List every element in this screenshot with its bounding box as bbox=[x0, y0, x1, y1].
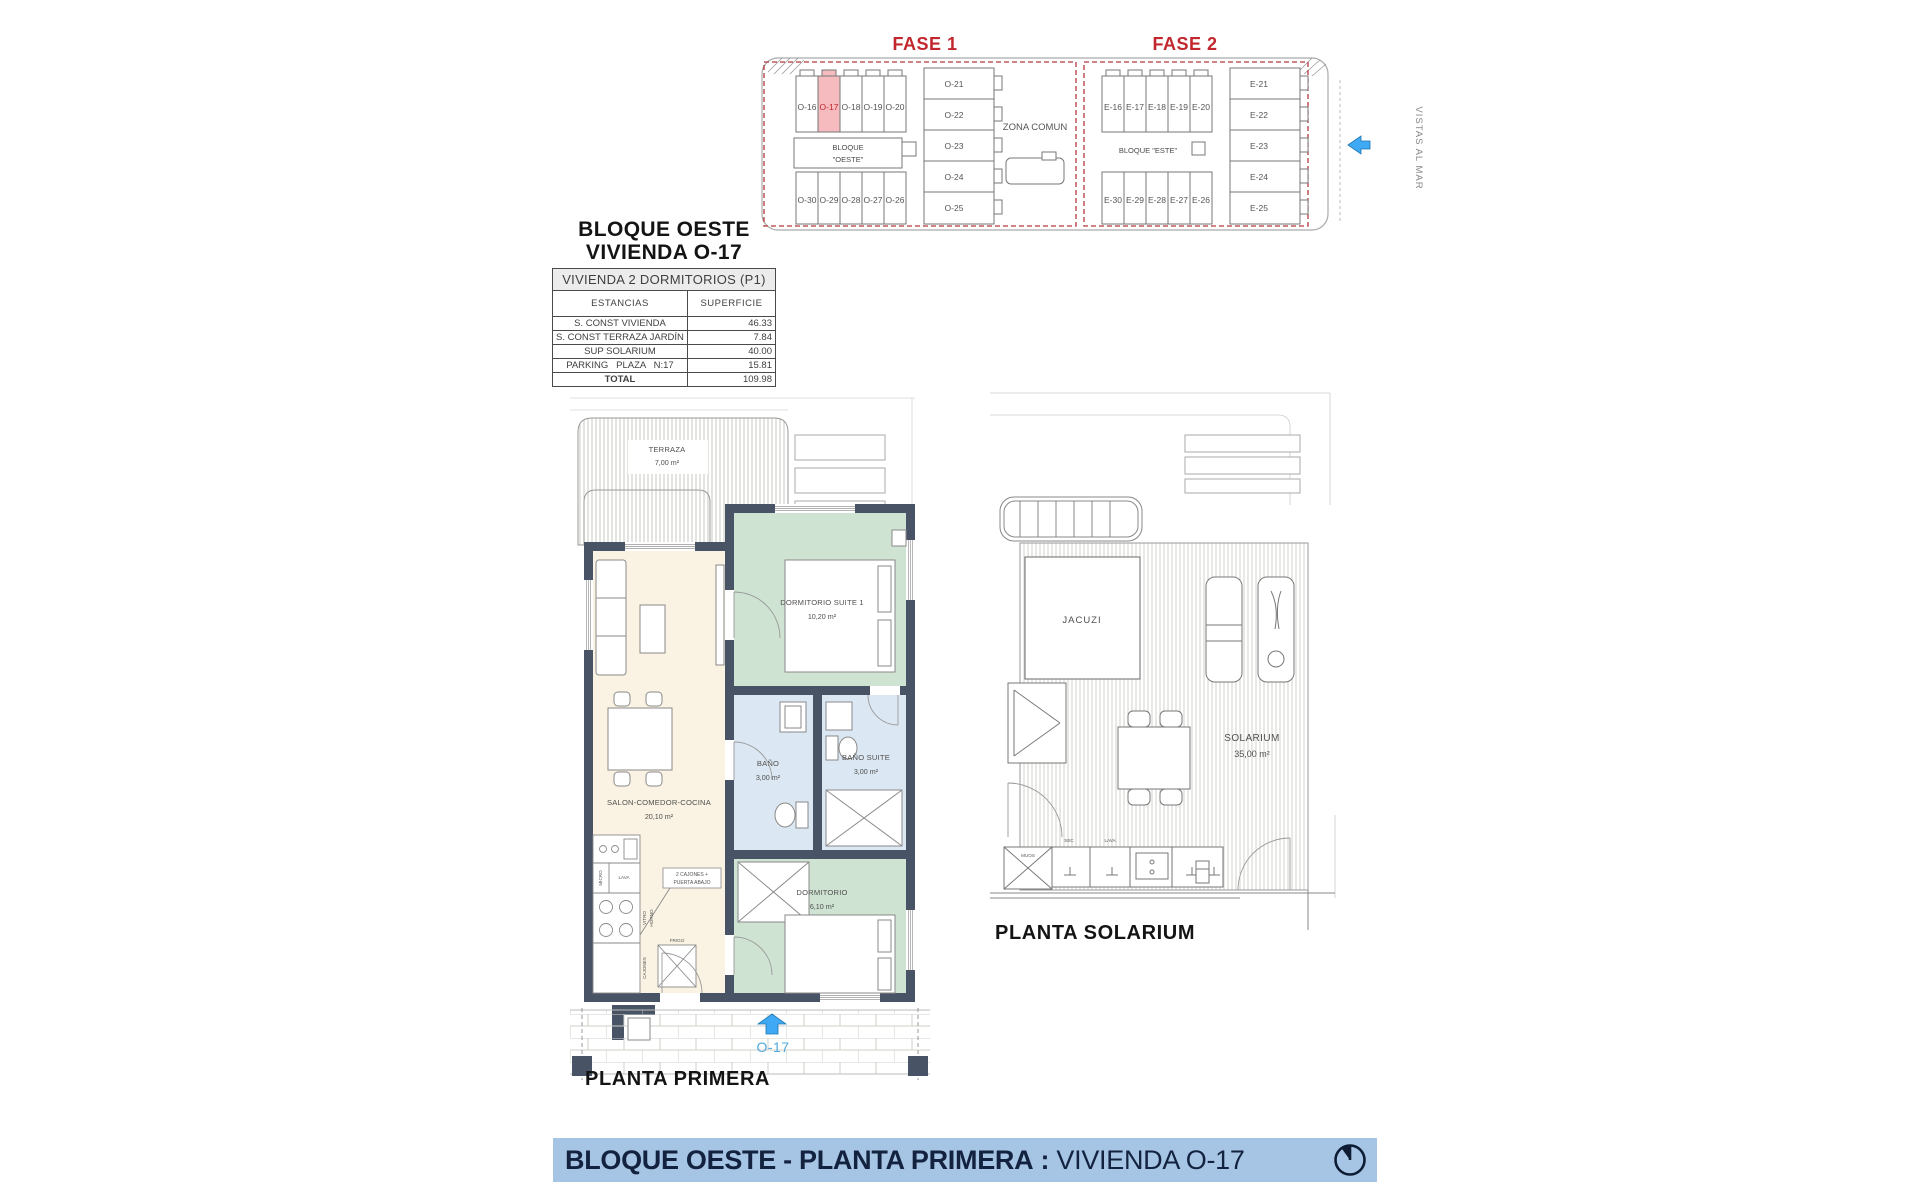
unit-label: O-22 bbox=[945, 110, 964, 120]
row-value: 7.84 bbox=[687, 331, 775, 345]
col-estancias: ESTANCIAS bbox=[553, 291, 688, 317]
lava-label: LAVA bbox=[1104, 838, 1116, 843]
bloque-oeste-label-1: BLOQUE bbox=[832, 143, 863, 152]
unit-label: E-20 bbox=[1192, 102, 1210, 112]
row-label: S. CONST TERRAZA JARDÍN bbox=[553, 331, 688, 345]
unit-label: O-26 bbox=[886, 195, 905, 205]
north-arrow-icon bbox=[1332, 1142, 1368, 1178]
unit-label-highlight: O-17 bbox=[820, 102, 839, 112]
unit-label: E-25 bbox=[1250, 203, 1268, 213]
dormitorio-name: DORMITORIO bbox=[796, 888, 847, 897]
salon-name: SALON-COMEDOR-COCINA bbox=[607, 798, 712, 807]
planters bbox=[795, 435, 885, 509]
sofa bbox=[596, 560, 626, 675]
fase2-title: FASE 2 bbox=[1152, 34, 1217, 54]
total-label: TOTAL bbox=[553, 373, 688, 387]
vitro-label: VITRO bbox=[642, 911, 647, 925]
corner-box: MUOS bbox=[1004, 847, 1052, 889]
unit-label: E-24 bbox=[1250, 172, 1268, 182]
note-line1: 2 CAJONES + bbox=[676, 872, 708, 878]
corner-marker bbox=[908, 1056, 928, 1076]
row-value: 40.00 bbox=[687, 345, 775, 359]
suite-area: 10,20 m² bbox=[808, 612, 837, 621]
micro-label: MICRO bbox=[598, 870, 603, 886]
bano-suite-area: 3,00 m² bbox=[854, 767, 879, 776]
area-table: VIVIENDA 2 DORMITORIOS (P1) ESTANCIAS SU… bbox=[552, 268, 776, 387]
suite-shower bbox=[826, 790, 902, 846]
floor-plan-planta-solarium: JACUZI SOLARIUM 35,00 m² SEC LAVA MUOS bbox=[990, 385, 1340, 930]
coffee-table bbox=[640, 605, 665, 653]
pool-shape bbox=[1006, 152, 1064, 184]
unit-label: O-21 bbox=[945, 79, 964, 89]
col-superficie: SUPERFICIE bbox=[687, 291, 775, 317]
floor-plan-planta-primera: TERRAZA 7,00 m² bbox=[570, 390, 930, 1080]
unit-label: O-20 bbox=[886, 102, 905, 112]
terraza-area: 7,00 m² bbox=[655, 458, 680, 467]
table-row-total: TOTAL 109.98 bbox=[553, 373, 776, 387]
suite-name: DORMITORIO SUITE 1 bbox=[780, 598, 864, 607]
row-label: SUP SOLARIUM bbox=[553, 345, 688, 359]
unit-number-label: O-17 bbox=[756, 1039, 789, 1055]
dormitorio-area: 6,10 m² bbox=[810, 902, 835, 911]
horno-label: HORNO bbox=[649, 909, 654, 927]
row-label: S. CONST VIVIENDA bbox=[553, 317, 688, 331]
note-line2: PUERTA ABAJO bbox=[673, 880, 710, 886]
unit-label: E-17 bbox=[1126, 102, 1144, 112]
row-label: PARKING PLAZA N:17 bbox=[553, 359, 688, 373]
salon-area: 20,10 m² bbox=[645, 812, 674, 821]
unit-label: E-23 bbox=[1250, 141, 1268, 151]
unit-label: O-29 bbox=[820, 195, 839, 205]
bloque-este-label: BLOQUE "ESTE" bbox=[1119, 146, 1178, 155]
solarium-area: 35,00 m² bbox=[1234, 749, 1270, 759]
sec-label: SEC bbox=[1064, 838, 1074, 843]
unit-label: O-25 bbox=[945, 203, 964, 213]
shower-box bbox=[1008, 683, 1066, 763]
table-row: SUP SOLARIUM 40.00 bbox=[553, 345, 776, 359]
jacuzzi: JACUZI bbox=[1025, 557, 1140, 679]
unit-label: E-22 bbox=[1250, 110, 1268, 120]
solarium-name: SOLARIUM bbox=[1224, 733, 1279, 744]
frigo-label: FRIGO bbox=[670, 938, 685, 943]
unit-label: E-16 bbox=[1104, 102, 1122, 112]
total-value: 109.98 bbox=[687, 373, 775, 387]
zona-comun-label: ZONA COMUN bbox=[1003, 122, 1068, 133]
bano-suite-name: BAÑO SUITE bbox=[842, 753, 890, 762]
corner-hatch-left bbox=[768, 58, 804, 74]
cajones-label: CAJONES bbox=[642, 957, 647, 979]
railing bbox=[1000, 497, 1142, 541]
fase1-title: FASE 1 bbox=[892, 34, 957, 54]
unit-label: O-24 bbox=[945, 172, 964, 182]
footer-banner: BLOQUE OESTE - PLANTA PRIMERA : VIVIENDA… bbox=[553, 1138, 1377, 1182]
unit-label: O-18 bbox=[842, 102, 861, 112]
unit-label: O-19 bbox=[864, 102, 883, 112]
footer-separator: : bbox=[1033, 1145, 1056, 1176]
box-label: MUOS bbox=[1021, 853, 1035, 858]
table-header: VIVIENDA 2 DORMITORIOS (P1) bbox=[553, 269, 776, 291]
row-value: 15.81 bbox=[687, 359, 775, 373]
jacuzi-label: JACUZI bbox=[1062, 615, 1101, 626]
fridge bbox=[658, 945, 696, 987]
title-block: BLOQUE OESTE VIVIENDA O-17 bbox=[552, 218, 776, 264]
unit-label: E-26 bbox=[1192, 195, 1210, 205]
title-line2: VIVIENDA O-17 bbox=[552, 241, 776, 264]
unit-label: E-27 bbox=[1170, 195, 1188, 205]
terraza-name: TERRAZA bbox=[649, 445, 687, 454]
row-value: 46.33 bbox=[687, 317, 775, 331]
table-row: S. CONST VIVIENDA 46.33 bbox=[553, 317, 776, 331]
counter bbox=[1048, 847, 1223, 887]
unit-label: O-28 bbox=[842, 195, 861, 205]
dormitorio-furniture bbox=[785, 915, 895, 993]
dining-table bbox=[608, 708, 672, 770]
table-row: PARKING PLAZA N:17 15.81 bbox=[553, 359, 776, 373]
unit-label: E-19 bbox=[1170, 102, 1188, 112]
lava-label: LAVA bbox=[618, 875, 630, 880]
unit-label: O-23 bbox=[945, 141, 964, 151]
bano-area: 3,00 m² bbox=[756, 773, 781, 782]
unit-label: E-28 bbox=[1148, 195, 1166, 205]
unit-label: E-18 bbox=[1148, 102, 1166, 112]
bloque-oeste-label-2: "OESTE" bbox=[833, 155, 864, 164]
footer-title-bold: BLOQUE OESTE - PLANTA PRIMERA bbox=[565, 1145, 1033, 1176]
vistas-al-mar-label: VISTAS AL MAR bbox=[1413, 106, 1424, 189]
kitchen-note: 2 CAJONES + PUERTA ABAJO bbox=[663, 868, 721, 888]
title-line1: BLOQUE OESTE bbox=[552, 218, 776, 241]
unit-label: E-30 bbox=[1104, 195, 1122, 205]
table-row: S. CONST TERRAZA JARDÍN 7.84 bbox=[553, 331, 776, 345]
tv-unit bbox=[716, 565, 724, 665]
footer-title-regular: VIVIENDA O-17 bbox=[1056, 1145, 1244, 1176]
stair-bars bbox=[1185, 435, 1300, 493]
unit-label: O-30 bbox=[798, 195, 817, 205]
unit-label: E-21 bbox=[1250, 79, 1268, 89]
planta-solarium-title: PLANTA SOLARIUM bbox=[995, 922, 1195, 945]
sea-view-arrow-icon bbox=[1348, 136, 1370, 154]
unit-label: O-16 bbox=[798, 102, 817, 112]
planta-primera-title: PLANTA PRIMERA bbox=[585, 1068, 770, 1091]
unit-label: O-27 bbox=[864, 195, 883, 205]
site-plan: FASE 1 FASE 2 O-16 O-17 O-18 O-19 O-20 B… bbox=[748, 18, 1448, 243]
unit-label: E-29 bbox=[1126, 195, 1144, 205]
